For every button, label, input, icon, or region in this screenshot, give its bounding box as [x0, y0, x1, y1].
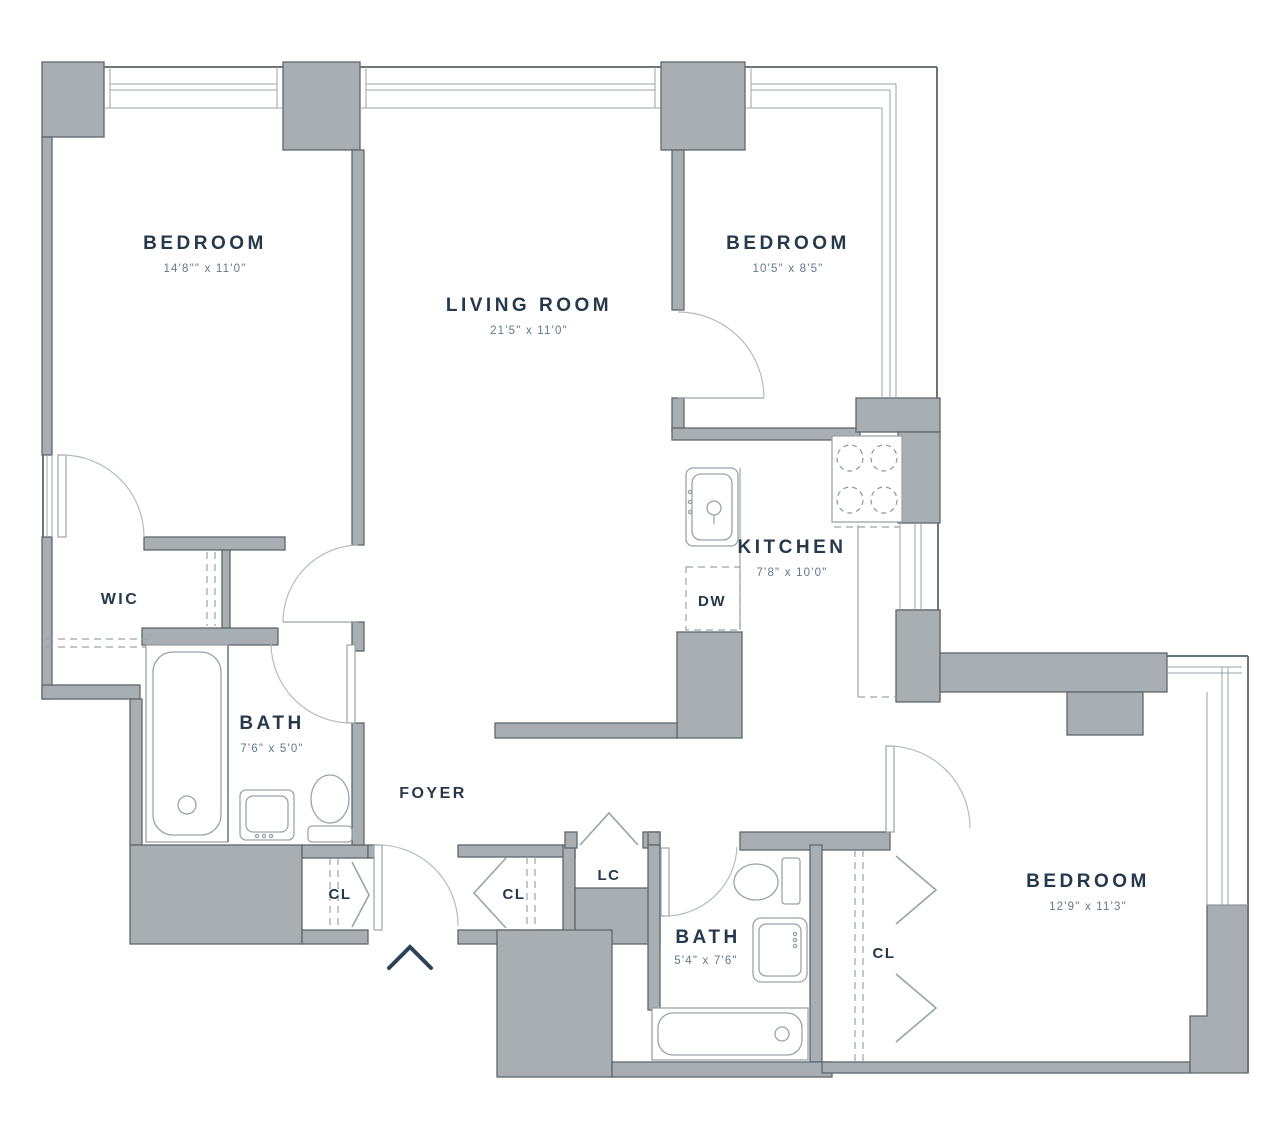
lc-label: LC	[598, 867, 621, 884]
bedroom2-dims: 10'5" x 8'5"	[752, 263, 823, 275]
floor-plan-drawing: BEDROOM 14'8"" x 11'0" LIVING ROOM 21'5"…	[0, 0, 1280, 1132]
cl-foyer-west-label: CL	[329, 886, 352, 903]
bedroom2-label: BEDROOM	[726, 233, 850, 254]
walls	[42, 62, 1248, 1077]
toilet-2	[734, 858, 800, 904]
cl-foyer-east-label: CL	[503, 886, 526, 903]
kitchen-sink	[686, 468, 738, 546]
wic-label: WIC	[101, 591, 140, 608]
toilet-1	[308, 775, 352, 842]
floor-plan: BEDROOM 14'8"" x 11'0" LIVING ROOM 21'5"…	[0, 0, 1280, 1132]
living-room-label: LIVING ROOM	[446, 295, 612, 316]
bathtub-2	[652, 1008, 808, 1060]
stove	[832, 436, 902, 527]
bedroom3-label: BEDROOM	[1026, 871, 1150, 892]
bath2-label: BATH	[675, 927, 740, 948]
bath2-dims: 5'4" x 7'6"	[674, 955, 737, 967]
entry-arrow-icon	[389, 947, 431, 968]
bathtub-1	[146, 645, 228, 842]
bedroom3-dims: 12'9" x 11'3"	[1049, 901, 1127, 913]
bedroom1-label: BEDROOM	[143, 233, 267, 254]
kitchen-label: KITCHEN	[738, 537, 847, 558]
kitchen-dims: 7'8" x 10'0"	[756, 567, 827, 579]
sink-1	[240, 790, 294, 840]
living-room-dims: 21'5" x 11'0"	[490, 325, 568, 337]
sink-2	[753, 918, 807, 982]
foyer-label: FOYER	[399, 785, 467, 802]
bath1-label: BATH	[239, 713, 304, 734]
cl-bedroom3-label: CL	[873, 945, 896, 962]
dishwasher-label: DW	[698, 593, 726, 610]
bedroom1-dims: 14'8"" x 11'0"	[163, 263, 246, 275]
bath1-dims: 7'6" x 5'0"	[240, 743, 303, 755]
